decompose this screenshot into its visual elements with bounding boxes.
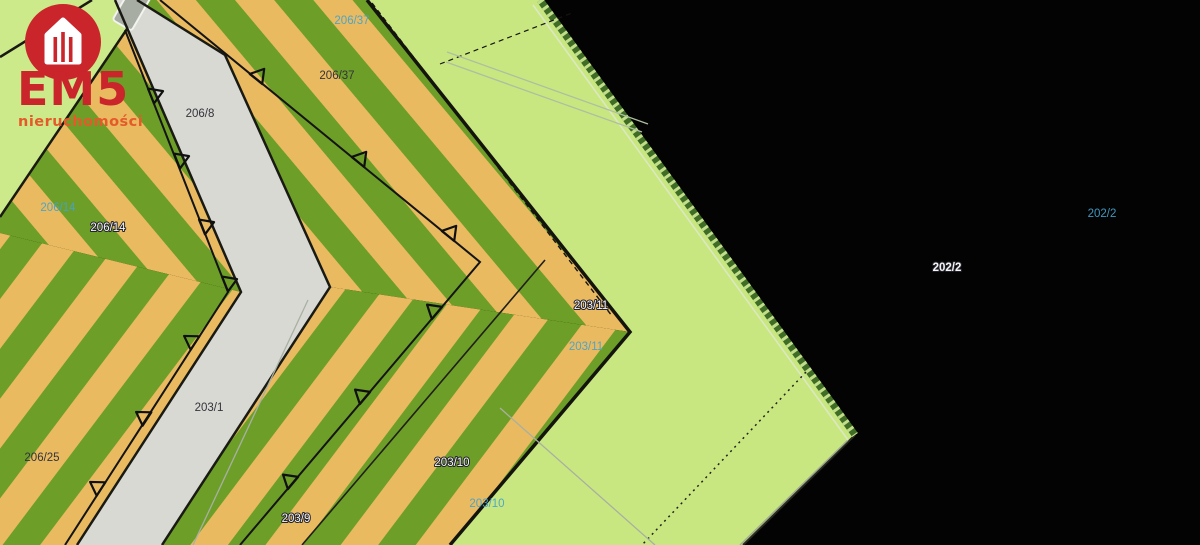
cadastral-map-viewport: 206/8 206/37 206/37 206/14 206/14 203/11… <box>0 0 1200 545</box>
label-203-11-blue: 203/11 <box>569 341 603 353</box>
label-206-8: 206/8 <box>186 108 215 120</box>
label-203-11: 203/11 <box>574 300 608 312</box>
label-206-14-blue: 206/14 <box>40 202 76 214</box>
label-202-2-blue: 202/2 <box>1088 208 1117 220</box>
label-206-14: 206/14 <box>90 222 126 234</box>
label-206-37-blue: 206/37 <box>334 15 369 27</box>
label-206-25: 206/25 <box>24 452 59 464</box>
label-203-10-blue: 203/10 <box>469 498 504 510</box>
label-203-10: 203/10 <box>434 457 469 469</box>
label-202-2: 202/2 <box>933 262 962 274</box>
label-203-9: 203/9 <box>282 513 311 525</box>
label-206-37: 206/37 <box>319 70 354 82</box>
label-203-1: 203/1 <box>195 402 224 414</box>
cadastral-map: 206/8 206/37 206/37 206/14 206/14 203/11… <box>0 0 1200 545</box>
